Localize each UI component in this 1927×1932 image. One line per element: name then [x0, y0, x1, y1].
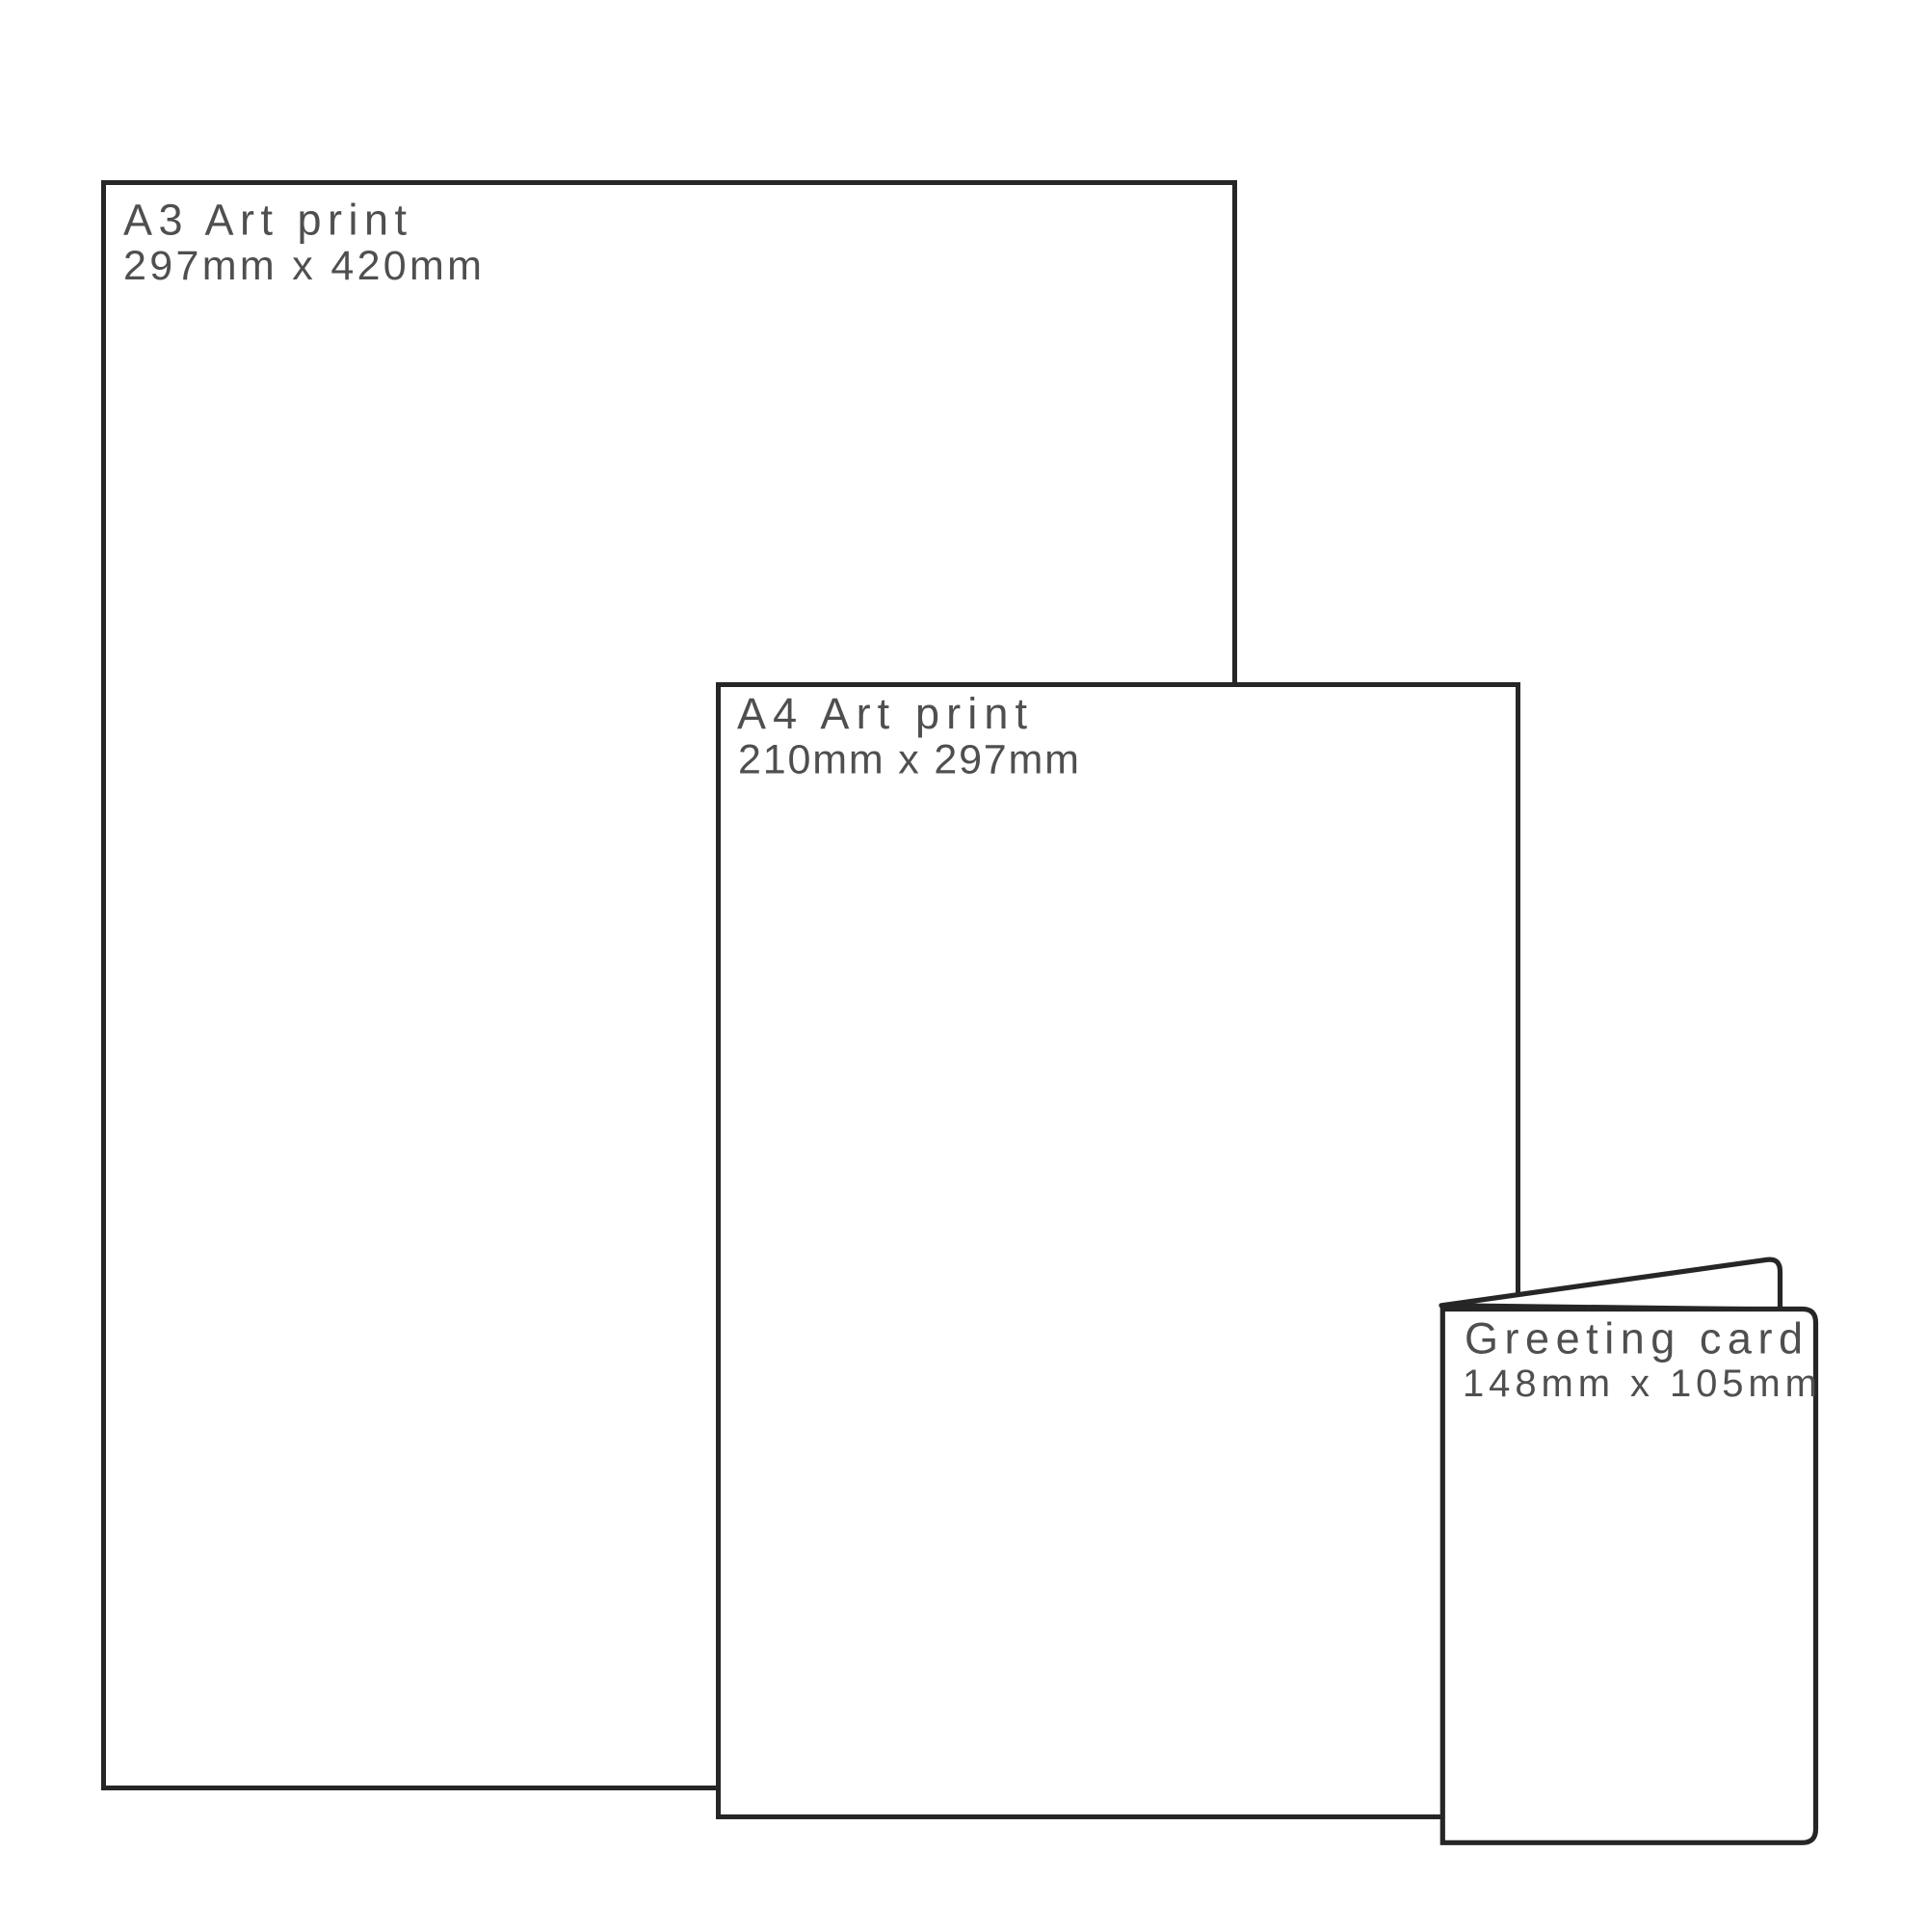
- svg-text:148mm x 105mm: 148mm x 105mm: [1463, 1363, 1817, 1405]
- svg-text:A3 Art print: A3 Art print: [123, 196, 407, 245]
- svg-text:297mm x 420mm: 297mm x 420mm: [123, 243, 482, 289]
- svg-text:A4 Art print: A4 Art print: [737, 689, 1027, 738]
- svg-text:210mm x 297mm: 210mm x 297mm: [738, 737, 1079, 783]
